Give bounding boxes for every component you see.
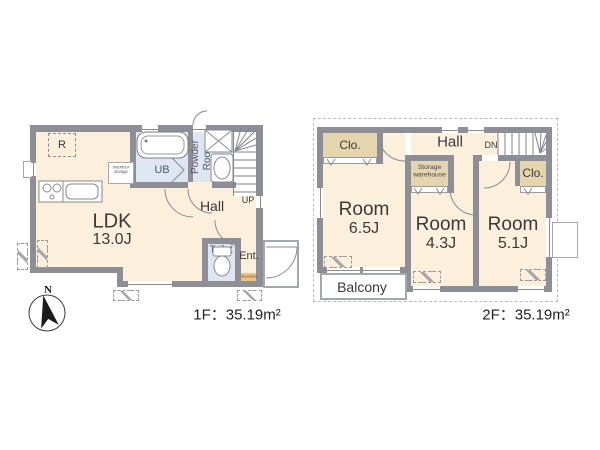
- stairs-1f: [233, 127, 256, 196]
- kitchen-counter: [39, 181, 102, 202]
- closet-door-marks: [327, 159, 532, 194]
- toilet-fixture: [213, 247, 231, 276]
- door-arc-entrance: [266, 247, 297, 278]
- compass-n-label: N: [44, 284, 52, 296]
- floorplan-canvas: Shoesbox R Interfloor storage LDK 13.0J …: [0, 0, 600, 450]
- door-arc-room650: [378, 134, 405, 161]
- stairs-2f: [498, 133, 546, 155]
- door-arc-powder: [188, 189, 212, 213]
- bath-folding-door: [172, 158, 184, 182]
- compass: N: [29, 284, 65, 331]
- door-arc-room430: [450, 189, 476, 215]
- bathtub: [137, 132, 188, 158]
- powder-sink: [211, 154, 233, 182]
- door-arc-room510: [484, 162, 510, 188]
- washing-machine: [205, 130, 232, 152]
- lineart-overlay: N: [0, 0, 600, 450]
- north-arrow: [34, 294, 58, 329]
- door-arc-ent-hall: [215, 220, 241, 246]
- door-arc-powder-ext: [193, 111, 207, 125]
